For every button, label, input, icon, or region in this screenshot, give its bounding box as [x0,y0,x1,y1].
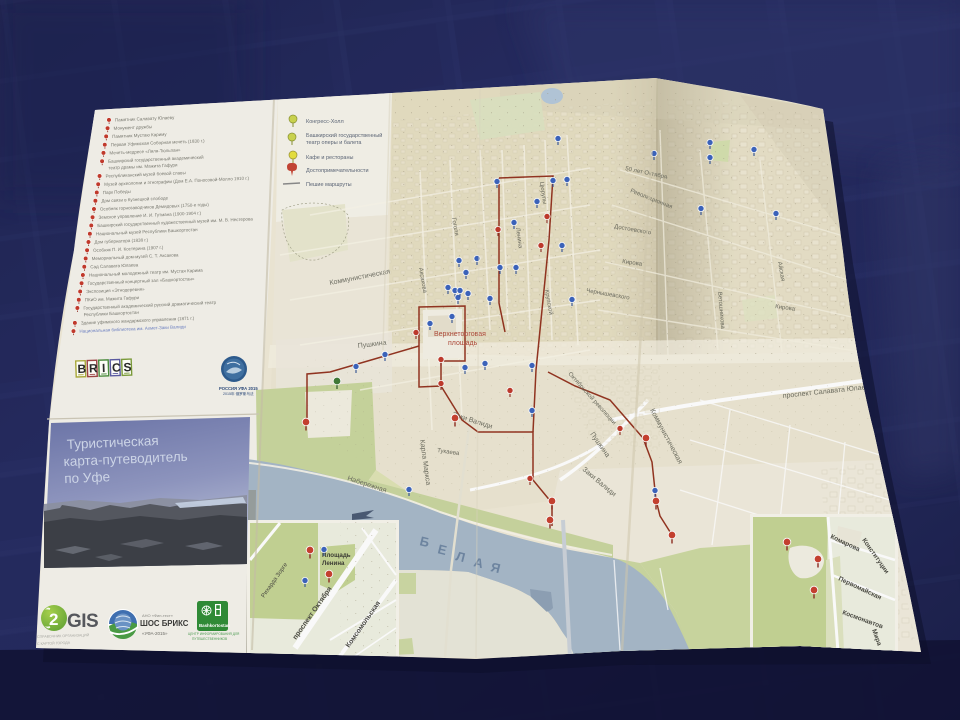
svg-text:АНО «Фин-тест»: АНО «Фин-тест» [142,613,174,618]
svg-text:I: I [102,361,106,375]
svg-text:Bashkortostan: Bashkortostan [199,623,230,628]
svg-text:ПУТЕШЕСТВЕННИКОВ: ПУТЕШЕСТВЕННИКОВ [192,637,227,641]
svg-text:S: S [123,360,131,374]
svg-text:2015年 俄罗斯乌法: 2015年 俄罗斯乌法 [223,391,254,396]
svg-text:2: 2 [49,610,58,629]
svg-text:B: B [77,362,86,376]
svg-text:«УФА-2015»: «УФА-2015» [142,631,168,636]
svg-text:C: C [112,360,121,374]
svg-text:ШОС БРИКС: ШОС БРИКС [140,619,189,628]
svg-text:ЦЕНТР ИНФОРМИРОВАНИЯ ДЛЯ: ЦЕНТР ИНФОРМИРОВАНИЯ ДЛЯ [188,632,240,636]
svg-text:по Уфе: по Уфе [64,469,110,486]
svg-text:GIS: GIS [67,611,98,632]
svg-text:РОССИЯ УФА 2015: РОССИЯ УФА 2015 [219,386,258,391]
svg-text:R: R [89,361,98,375]
